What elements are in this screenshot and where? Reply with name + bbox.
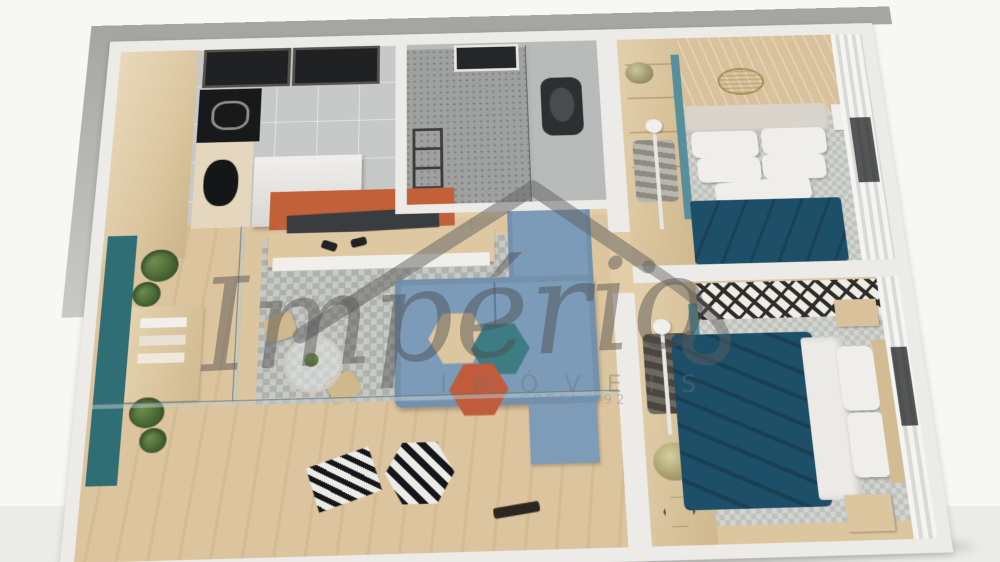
pillow xyxy=(697,156,763,182)
bedroom2-nightstand xyxy=(844,494,896,532)
wall-bathroom-left xyxy=(395,45,407,211)
bedroom1-duvet xyxy=(690,197,849,264)
pillow xyxy=(690,130,759,158)
sofa-chaise xyxy=(507,201,594,283)
pillow xyxy=(760,127,828,155)
render-stage: Império IMÓVEIS CRECI | 92 xyxy=(0,0,1000,562)
bathroom-window xyxy=(454,44,519,72)
cooktop-ring-icon xyxy=(211,100,250,130)
cooktop xyxy=(196,88,261,143)
toilet-seat xyxy=(549,87,575,122)
toilet xyxy=(540,77,584,136)
bedroom2-nightstand xyxy=(834,299,880,327)
kitchen-dark-window-right xyxy=(292,46,380,86)
floorplan-3d xyxy=(58,23,953,562)
shelf-items xyxy=(140,317,187,328)
kitchen-dark-window-left xyxy=(202,48,291,88)
blue-ottoman xyxy=(529,402,600,464)
apartment-interior xyxy=(74,34,938,562)
balcony-shelf xyxy=(124,305,204,402)
